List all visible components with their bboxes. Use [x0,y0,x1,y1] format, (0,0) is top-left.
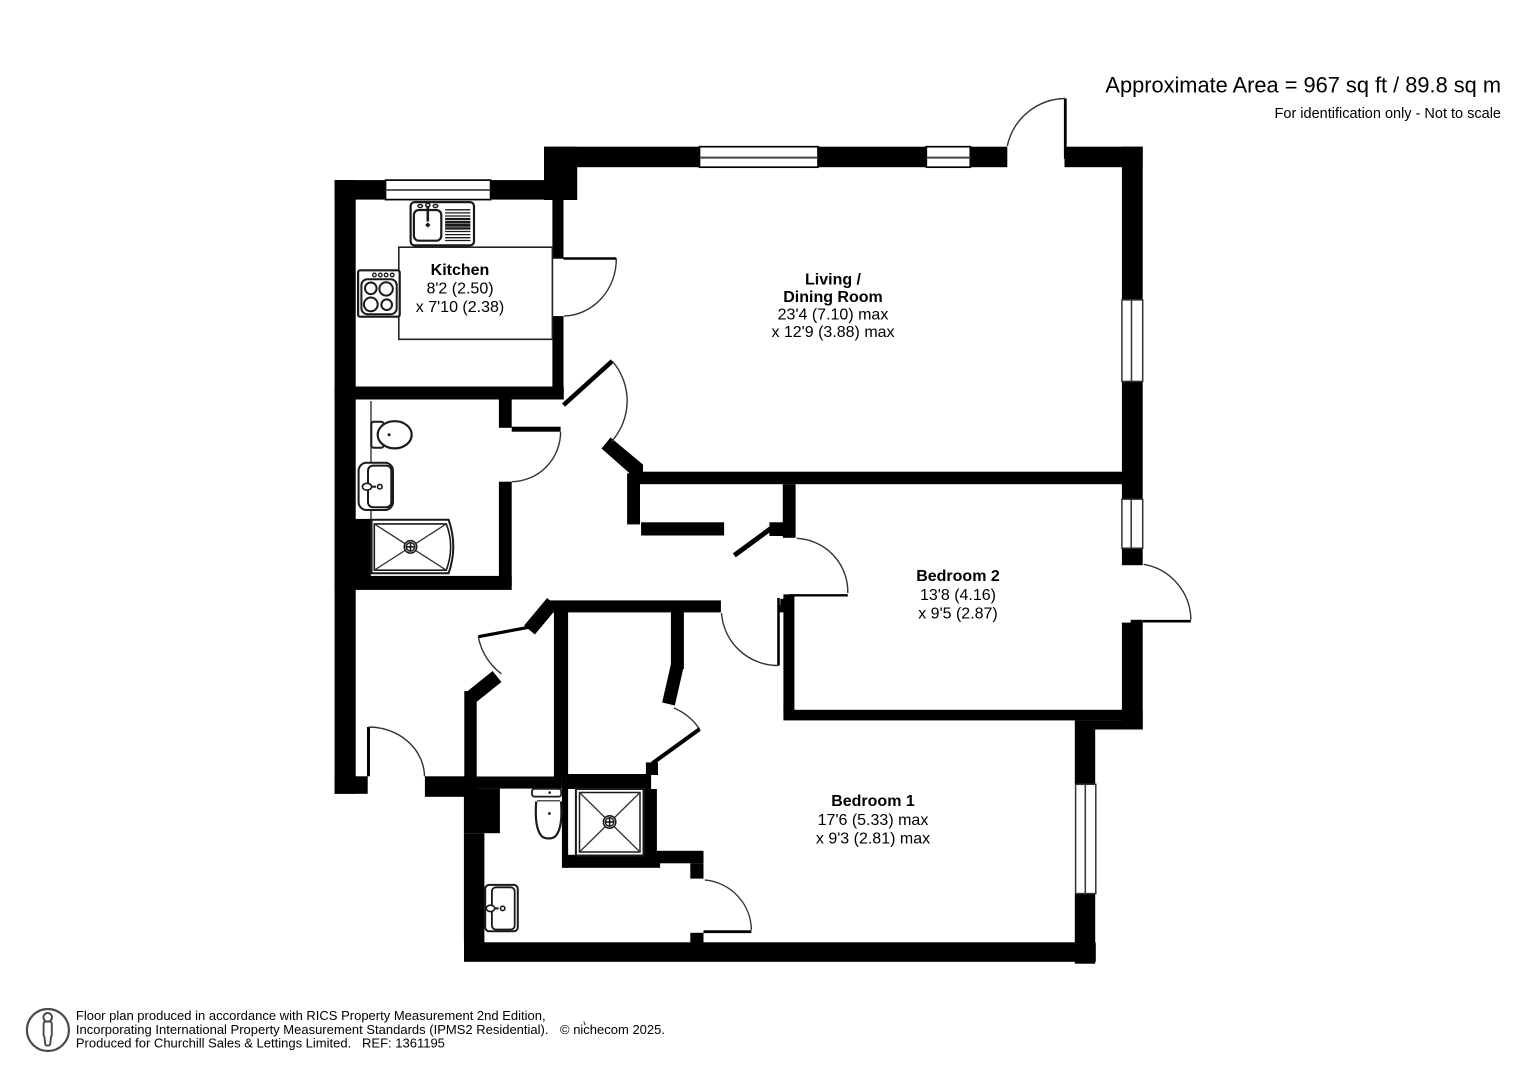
svg-text:17'6 (5.33) max: 17'6 (5.33) max [818,812,929,829]
svg-text:13'8 (4.16): 13'8 (4.16) [920,587,996,604]
svg-text:Floor plan produced in accorda: Floor plan produced in accordance with R… [76,1008,546,1023]
svg-text:Bedroom 2: Bedroom 2 [916,568,1000,585]
svg-text:Dining Room: Dining Room [783,289,883,306]
svg-text:23'4 (7.10) max: 23'4 (7.10) max [778,306,889,323]
svg-text:Produced for Churchill Sales &: Produced for Churchill Sales & Lettings … [76,1036,445,1051]
svg-text:8'2 (2.50): 8'2 (2.50) [426,280,493,297]
svg-text:x 9'3 (2.81) max: x 9'3 (2.81) max [816,831,930,848]
svg-text:Kitchen: Kitchen [431,262,490,279]
svg-text:x 9'5 (2.87): x 9'5 (2.87) [918,606,998,623]
svg-text:x 12'9 (3.88) max: x 12'9 (3.88) max [771,324,894,341]
svg-text:Approximate Area = 967 sq ft /: Approximate Area = 967 sq ft / 89.8 sq m [1105,73,1501,98]
svg-text:x 7'10 (2.38): x 7'10 (2.38) [416,299,504,316]
svg-text:Living /: Living / [805,272,862,289]
svg-text:Bedroom 1: Bedroom 1 [831,793,915,810]
svg-text:© nichecom 2025.: © nichecom 2025. [560,1022,665,1037]
svg-text:For identification only - Not: For identification only - Not to scale [1275,106,1501,122]
